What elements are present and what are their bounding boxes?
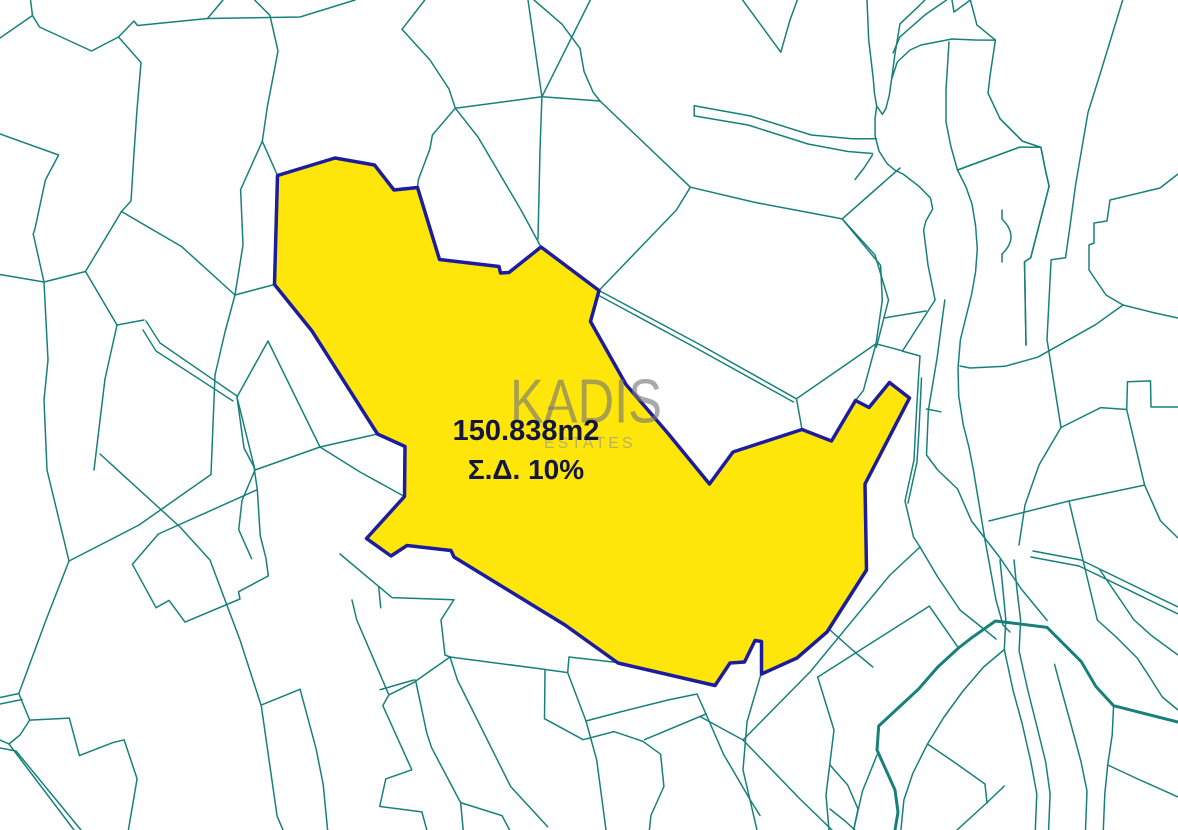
svg-text:Σ.Δ. 10%: Σ.Δ. 10% bbox=[468, 454, 584, 485]
svg-text:150.838m2: 150.838m2 bbox=[453, 415, 600, 447]
